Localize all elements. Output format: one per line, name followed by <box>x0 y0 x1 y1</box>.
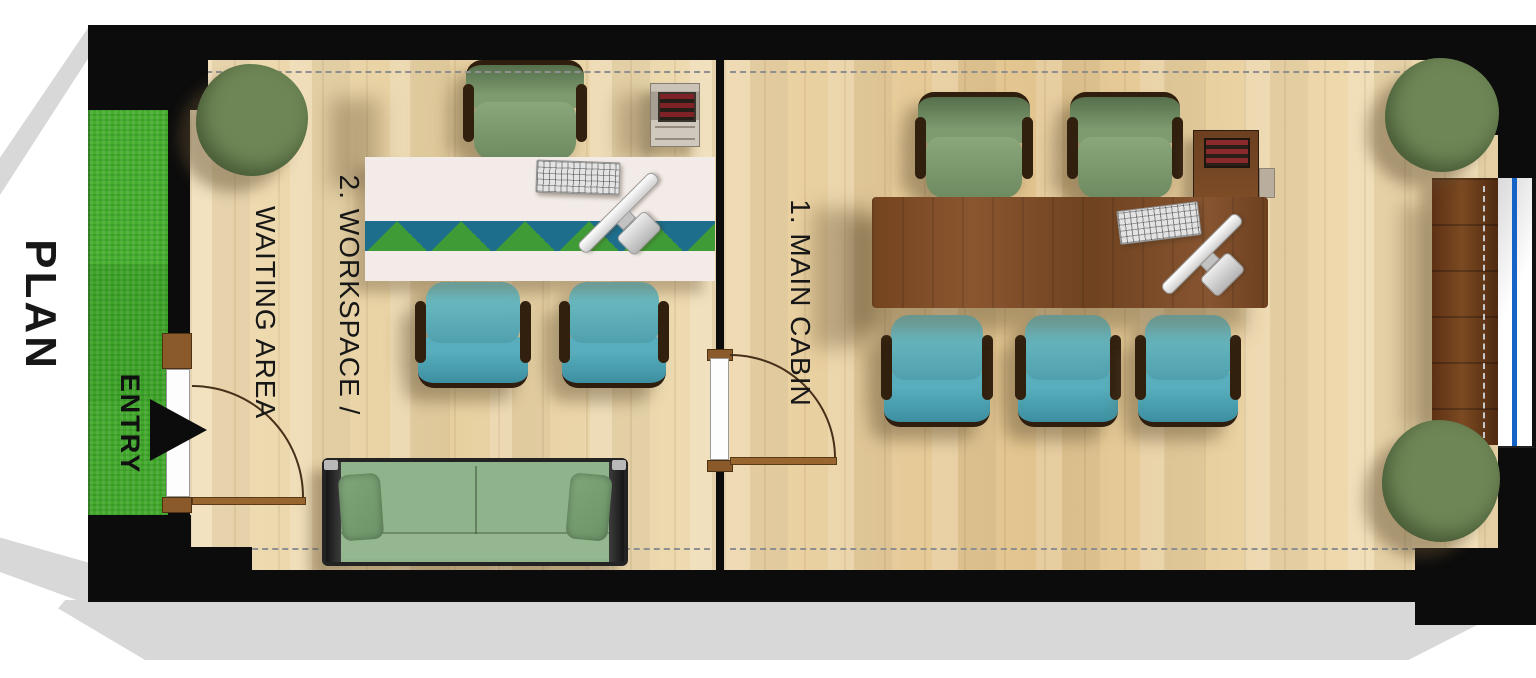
entry-door-jamb <box>162 333 192 369</box>
main-cabin-label-text: 1. MAIN CABIN <box>779 199 821 406</box>
sideboard <box>1432 178 1498 445</box>
window-glazing-line <box>1512 177 1517 446</box>
entry-door-jamb <box>162 497 192 513</box>
chair-seat <box>426 282 521 343</box>
cabin-door-opening <box>710 358 729 460</box>
entry-door-leaf <box>192 497 306 505</box>
chair-arm <box>1022 117 1033 178</box>
plan-title-text: PLAN <box>15 239 65 371</box>
visitor-chair-teal <box>884 315 990 427</box>
entry-label-text: ENTRY <box>115 374 146 475</box>
monitor <box>1158 220 1270 312</box>
chair-arm <box>559 301 570 362</box>
chair-arm <box>576 84 587 142</box>
wall-top-left-block <box>88 25 208 110</box>
paper-shadow-top-left <box>0 25 90 195</box>
desk-chair-green <box>1070 92 1180 198</box>
potted-plant <box>1385 58 1499 172</box>
sofa-frame <box>609 462 624 562</box>
chair-back <box>1138 373 1238 427</box>
potted-plant <box>1382 420 1500 542</box>
wall-bottom-right-block <box>1415 548 1536 625</box>
cabinet-shadow <box>618 95 650 157</box>
monitor <box>578 183 683 268</box>
sofa <box>322 458 628 566</box>
sofa-pillow <box>338 473 385 542</box>
entry-label: ENTRY <box>114 339 146 509</box>
floor-plan-canvas: PLAN ENTRY 2. WORKSPACE / WAITING AREA 1… <box>0 0 1536 678</box>
cabinet-ledge <box>1259 168 1275 198</box>
chair-arm <box>658 301 669 362</box>
chair-seat <box>926 137 1022 198</box>
sofa-seam <box>475 466 477 534</box>
paper-shadow-bottom-left <box>0 455 90 605</box>
visitor-chair-teal <box>562 282 666 388</box>
chair-back <box>884 373 990 427</box>
page-title: PLAN <box>12 195 68 415</box>
chair-arm <box>1015 335 1026 400</box>
desk-chair-green <box>466 60 584 160</box>
visitor-chair-teal <box>1138 315 1238 427</box>
chair-arm <box>415 301 426 362</box>
chair-seat <box>1025 315 1111 380</box>
chair-seat <box>474 102 576 160</box>
chair-arm <box>1135 335 1146 400</box>
window <box>1498 175 1536 448</box>
wall-bottom <box>250 570 1417 602</box>
wall-entry-upper <box>168 110 190 336</box>
desk-chair-green <box>918 92 1030 198</box>
chair-arm <box>982 335 993 400</box>
printer-stand <box>650 83 700 147</box>
chair-back <box>418 337 528 388</box>
vent-slats <box>658 92 696 122</box>
wall-partition-upper <box>716 60 724 350</box>
wall-bottom-step <box>190 547 252 602</box>
dashed-line-sideboard <box>1483 186 1485 438</box>
chair-back <box>562 337 666 388</box>
wall-bottom-left-block <box>88 515 191 602</box>
workspace-label: 2. WORKSPACE / WAITING AREA <box>265 125 349 465</box>
chair-arm <box>520 301 531 362</box>
wall-right-upper <box>1498 135 1536 178</box>
chair-arm <box>1067 117 1078 178</box>
chair-back <box>1018 373 1118 427</box>
vent-cabinet <box>1193 130 1259 198</box>
chair-arm <box>1110 335 1121 400</box>
wall-partition-lower <box>716 468 724 573</box>
chair-back <box>1070 92 1180 143</box>
workspace-label-line1: 2. WORKSPACE / <box>334 175 365 416</box>
chair-seat <box>891 315 982 380</box>
chair-arm <box>1172 117 1183 178</box>
sideboard-shadow <box>1402 205 1428 430</box>
sofa-pillow <box>565 472 613 541</box>
chair-arm <box>463 84 474 142</box>
chair-back <box>918 92 1030 143</box>
chair-arm <box>881 335 892 400</box>
sofa-frame <box>326 462 341 562</box>
entry-arrow-icon <box>150 399 207 461</box>
chair-back <box>466 60 584 108</box>
chair-arm <box>915 117 926 178</box>
dashed-line-top-cabin <box>730 71 1420 73</box>
main-cabin-label: 1. MAIN CABIN <box>777 153 823 453</box>
wall-top <box>88 25 1460 60</box>
dashed-line-bottom-cabin <box>730 548 1418 550</box>
cabin-door-leaf <box>730 457 837 465</box>
vent-slats <box>1204 138 1250 168</box>
visitor-chair-teal <box>1018 315 1118 427</box>
chair-seat <box>1078 137 1173 198</box>
paper-shadow-bottom <box>58 600 1510 660</box>
chair-arm <box>1230 335 1241 400</box>
sofa-corner-cap <box>612 460 626 470</box>
visitor-chair-teal <box>418 282 528 388</box>
workspace-label-line2: WAITING AREA <box>250 206 281 419</box>
chair-seat <box>569 282 658 343</box>
